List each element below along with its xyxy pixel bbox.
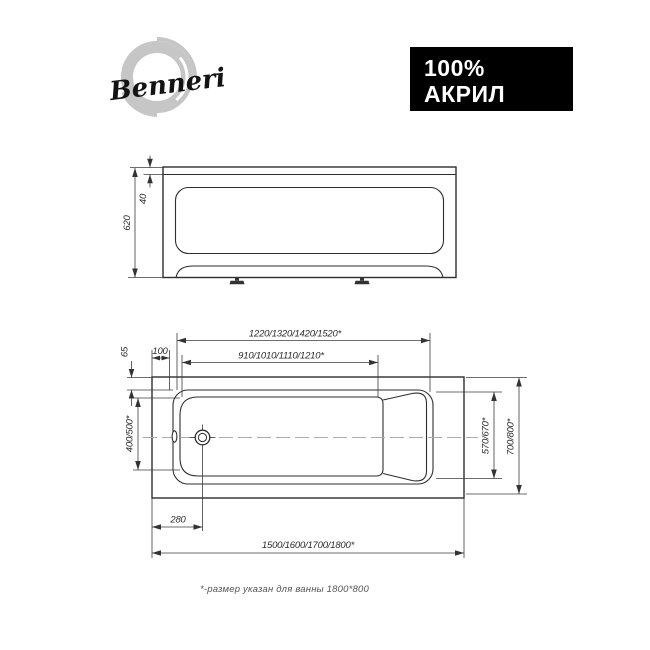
dim-label-rim-side-width: 65 (120, 346, 131, 357)
dim-label-drain-offset: 280 (169, 515, 186, 526)
dim-rim-side-width: 65 (120, 346, 135, 406)
dim-front-total-height: 620 (122, 168, 138, 278)
size-footnote: *-размер указан для ванны 1800*800 (200, 584, 369, 595)
top-view-drawing: 1220/1320/1420/1520* 910/1010/1110/1210*… (120, 329, 528, 559)
dim-inner-width: 570/670* (481, 392, 497, 479)
drawing-canvas: 620 40 (0, 0, 650, 650)
dim-label-overall-width: 700/800* (506, 418, 517, 455)
dim-front-rim-height: 40 (138, 156, 153, 205)
dim-overall-width: 700/800* (506, 378, 522, 495)
bathtub-technical-drawing-page: Benneri 100% АКРИЛ (0, 0, 650, 650)
front-view-drawing: 620 40 (122, 156, 456, 285)
dim-label-head-end-width: 400/500* (125, 415, 136, 452)
dim-edge-offset: 100 (152, 346, 170, 360)
dim-label-overall-length: 1500/1600/1700/1800* (262, 540, 355, 551)
dim-label-inner-width: 570/670* (481, 417, 492, 454)
dim-label-rim-length: 1220/1320/1420/1520* (249, 329, 342, 340)
front-foot-right (355, 278, 370, 285)
front-tub-body (163, 167, 456, 278)
dim-drain-offset: 280 (152, 515, 203, 530)
dim-head-end-width: 400/500* (125, 398, 141, 470)
dim-bottom-length: 910/1010/1110/1210* (182, 351, 378, 366)
dim-label-rim-height: 40 (138, 193, 149, 204)
dim-label-edge-offset: 100 (152, 346, 168, 357)
front-foot-left (230, 278, 245, 285)
dim-rim-length: 1220/1320/1420/1520* (177, 329, 430, 344)
overflow-icon (172, 431, 177, 442)
dim-overall-length: 1500/1600/1700/1800* (152, 540, 464, 556)
dim-label-total-height: 620 (122, 214, 133, 230)
dim-label-bottom-length: 910/1010/1110/1210* (238, 351, 324, 362)
